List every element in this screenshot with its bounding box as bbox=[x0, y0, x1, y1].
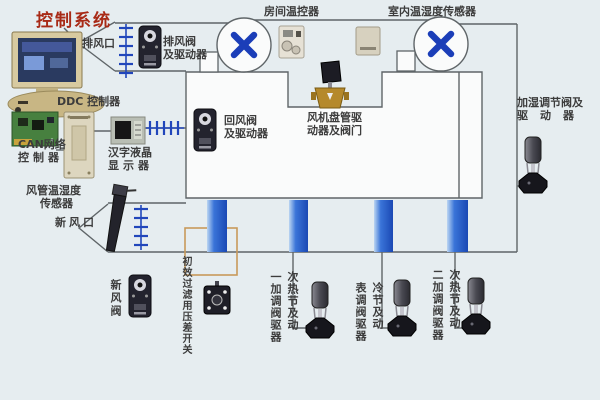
reheat-coil-bar bbox=[447, 200, 468, 252]
preheat-valve-label: 一加调阀驱器 次热节及动 bbox=[267, 271, 300, 343]
room-thermostat-device bbox=[279, 26, 304, 58]
filter-bar bbox=[207, 200, 227, 252]
indoor-sensor-device bbox=[356, 27, 380, 55]
fresh-outlet-label: 新风口 bbox=[55, 216, 97, 229]
exhaust-valve-label: 排风阀 及驱动器 bbox=[163, 35, 207, 61]
duct-sensor-label: 风管温湿度 传感器 bbox=[26, 184, 81, 210]
indoor-sensor-label: 室内温湿度传感器 bbox=[388, 5, 476, 18]
can-label: CAN网络 控制器 bbox=[18, 138, 66, 164]
return-valve-actuator bbox=[194, 109, 216, 151]
exhaust-outlet-label: 排风口 bbox=[82, 37, 115, 50]
page-title: 控制系统 bbox=[36, 6, 112, 31]
return-valve-label: 回风阀 及驱动器 bbox=[224, 114, 268, 140]
diagram-canvas bbox=[0, 0, 600, 400]
exhaust-valve-actuator bbox=[139, 26, 161, 68]
cooling-valve-label: 表调阀驱器 冷节及动 bbox=[352, 282, 385, 342]
humidifier-valve-label: 加湿调节阀及 驱动器 bbox=[517, 96, 586, 122]
cooling-coil-bar bbox=[374, 200, 393, 252]
lcd-label: 汉字液晶 显示器 bbox=[108, 146, 153, 172]
filter-switch-label: 初效过滤用压差开关 bbox=[179, 256, 192, 355]
fresh-valve-actuator bbox=[129, 275, 151, 317]
hvac-control-system-diagram: 控制系统 DDC 控制器 CAN网络 控制器 汉字液晶 显示器 排风口 排风阀 … bbox=[0, 0, 600, 400]
fan-coil-label: 风机盘管驱 动器及阀门 bbox=[307, 111, 362, 137]
lcd-display bbox=[111, 117, 145, 144]
fresh-valve-label: 新风阀 bbox=[109, 279, 122, 318]
preheat-coil-bar bbox=[289, 200, 308, 252]
ddc-controller bbox=[64, 112, 94, 178]
ddc-label: DDC 控制器 bbox=[57, 95, 120, 108]
room-thermostat-label: 房间温控器 bbox=[264, 5, 319, 18]
reheat-valve-label: 二加调阀驱器 次热节及动 bbox=[429, 269, 462, 341]
pressure-switch-device bbox=[204, 281, 230, 314]
